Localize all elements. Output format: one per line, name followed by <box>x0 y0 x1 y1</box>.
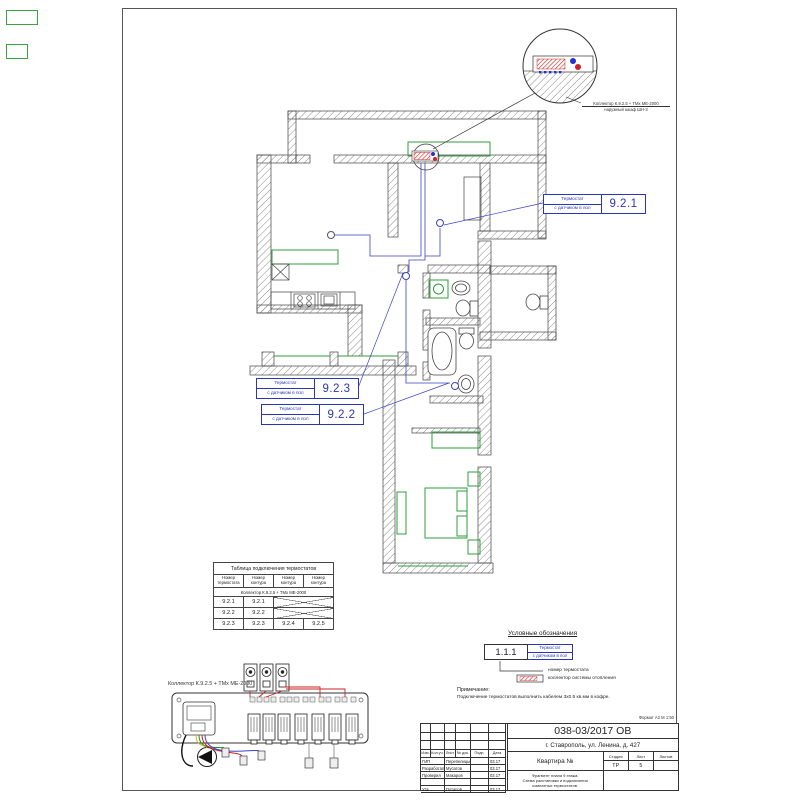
callout-label: Термостат <box>544 195 601 205</box>
col-header: Номерконтура <box>274 575 304 588</box>
kitchen <box>271 177 481 309</box>
collector-row: Коллектор К.9.2.5 + ТМх МЕ-2000 <box>214 588 334 597</box>
drawing-sheet: Коллектор К.9.2.5 + ТМх МЕ-2000 наружный… <box>0 0 800 800</box>
sheet-description: Фрагмент плана 9 этажа. Схема расстановк… <box>508 771 603 790</box>
callout-label: с датчиком в пол <box>544 205 601 214</box>
connector-leads <box>309 744 334 758</box>
object-name: Квартира № <box>508 752 603 771</box>
sheet-value: 5 <box>629 761 654 770</box>
callout-label: с датчиком в пол <box>262 415 319 424</box>
table-row: 9.2.1 9.2.1 <box>214 597 334 608</box>
document-number: 038-03/2017 ОВ <box>508 724 678 739</box>
col-header: Номертермостата <box>214 575 244 588</box>
sheet-label: Лист <box>629 752 654 760</box>
sheets-label: Листов <box>654 752 678 760</box>
stage-value: ТР <box>604 761 629 770</box>
callout-9-2-3: Термостатс датчиком в пол 9.2.3 <box>256 378 359 399</box>
terminal-strip <box>250 697 356 702</box>
legend-thermostat-number: 1.1.1 <box>484 644 528 660</box>
legend-symbols <box>500 661 543 682</box>
closet <box>432 432 480 448</box>
detail-label-line2: наружный шкаф ШН-3 <box>582 107 670 112</box>
callout-label: Термостат <box>262 405 319 415</box>
table-title: Таблица подключения термостатов <box>214 563 334 575</box>
callout-label: с датчиком в пол <box>257 389 314 398</box>
legend-caption-collector: коллектор системы отопления <box>548 676 616 681</box>
toilet-tank <box>470 301 478 316</box>
bedroom-wardrobe <box>397 492 406 534</box>
detail-leader <box>433 93 535 149</box>
legend-title: Условные обозначения <box>508 630 577 637</box>
legend-thermostat-label: с датчиком в пол <box>528 653 572 660</box>
col-header: Номерконтура <box>244 575 274 588</box>
note-text: Подключение термостатов выполнить кабеле… <box>457 695 610 700</box>
title-block: Изм. Кол.уч. Лист № док. Подп. Дата ГИПП… <box>420 723 679 791</box>
callout-label: Термостат <box>257 379 314 389</box>
bed <box>425 488 467 538</box>
title-block-signatures: Изм. Кол.уч. Лист № док. Подп. Дата ГИПП… <box>421 724 508 790</box>
table-row: 9.2.2 9.2.2 <box>214 608 334 619</box>
thermostat-number: 9.2.1 <box>602 195 645 213</box>
furniture <box>272 142 490 554</box>
table-row: 9.2.3 9.2.3 9.2.4 9.2.5 <box>214 619 334 630</box>
stage-label: Стадия <box>604 752 629 760</box>
toilet <box>460 333 474 349</box>
format-note: Формат А2 М 1:50 <box>608 715 674 720</box>
callout-9-2-2: Термостатс датчиком в пол 9.2.2 <box>261 404 364 425</box>
legend-caption-number: номер термостата <box>548 668 589 673</box>
signature-rows: ГИППерепелицын03.17 РазработалМусатов03.… <box>421 758 507 793</box>
manifold-diagram <box>172 664 368 768</box>
callout-9-2-1: Термостатс датчиком в пол 9.2.1 <box>543 194 646 214</box>
toilet <box>526 294 540 310</box>
floor-plan-drawing <box>0 0 800 800</box>
sheets-value <box>654 761 678 770</box>
signature-columns: Изм. Кол.уч. Лист № док. Подп. Дата <box>421 750 507 759</box>
thermostat-number: 9.2.2 <box>320 405 363 424</box>
manifold-label: Коллектор К.9.2.5 + ТМх МЕ-2000 <box>168 681 252 687</box>
walls <box>250 111 556 573</box>
stage-sheet-cells: Стадия Лист Листов ТР 5 <box>604 752 678 790</box>
col-header: Номерконтура <box>304 575 334 588</box>
detail-label: Коллектор К.9.2.5 + ТМх МЕ-2000 наружный… <box>582 101 670 112</box>
toilet <box>456 300 470 316</box>
legend-item: 1.1.1 Термостатс датчиком в пол <box>484 644 573 660</box>
pump <box>198 748 217 767</box>
connection-table: Таблица подключения термостатов Номертер… <box>213 562 334 630</box>
legend-thermostat-label: Термостат <box>528 645 572 653</box>
thermostat-number: 9.2.3 <box>315 379 358 398</box>
washing-machine <box>429 280 448 298</box>
note-title: Примечание: <box>457 687 490 693</box>
project-address: г. Ставрополь, ул. Ленина, д. 427 <box>508 739 678 752</box>
dining-counter <box>272 250 338 264</box>
duct <box>464 177 481 220</box>
toilet-tank <box>540 296 548 309</box>
